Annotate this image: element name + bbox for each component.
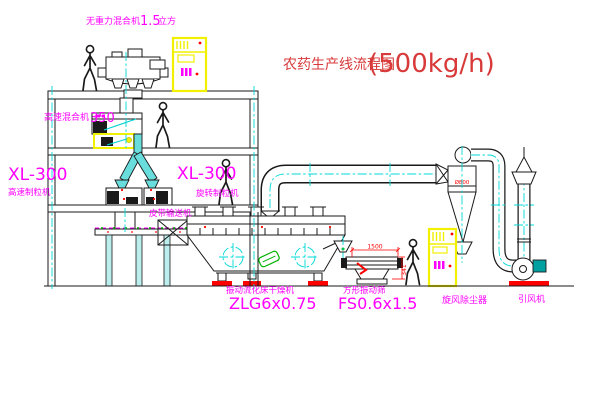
label-hs-mixer: 高速混合机 bbox=[44, 111, 89, 123]
granulator-left-unit bbox=[104, 188, 144, 205]
label-granulator-right-model: XL-300 bbox=[177, 164, 236, 184]
control-cabinet-lower bbox=[429, 229, 456, 286]
label-granulator-right-name: 旋转制粒机 bbox=[196, 188, 239, 199]
person-figure-top-floor bbox=[83, 46, 97, 91]
label-fan: 引风机 bbox=[518, 293, 545, 305]
label-granulator-left-name: 高速制粒机 bbox=[8, 187, 51, 198]
label-hs-mixer-value: 350 bbox=[90, 111, 115, 126]
cad-flow-diagram: 1500 341 Ø800 bbox=[0, 0, 600, 403]
control-cabinet-upper bbox=[173, 38, 206, 91]
exhaust-stack bbox=[512, 147, 536, 268]
label-top-mixer: 无重力混合机 bbox=[86, 15, 140, 27]
diagram-canvas: 1500 341 Ø800 bbox=[0, 0, 600, 403]
label-cyclone: 旋风除尘器 bbox=[442, 294, 487, 306]
label-belt-conveyor: 皮带输送机 bbox=[149, 208, 192, 219]
label-screen-model: FS0.6x1.5 bbox=[338, 294, 417, 313]
fluid-bed-dryer bbox=[187, 207, 345, 286]
page-title-capacity: (500kg/h) bbox=[368, 49, 495, 79]
induced-draft-fan bbox=[509, 258, 549, 286]
person-figure-ground bbox=[406, 240, 420, 285]
granulator-right-unit bbox=[142, 188, 174, 205]
belt-conveyor bbox=[95, 220, 192, 286]
dim-screen-width: 1500 bbox=[367, 244, 382, 251]
label-granulator-left-model: XL-300 bbox=[8, 165, 67, 185]
gravity-free-mixer bbox=[98, 49, 168, 114]
label-dryer-model: ZLG6x0.75 bbox=[229, 294, 317, 313]
fan-suction-pipe bbox=[471, 155, 517, 266]
label-top-mixer-unit: 立方 bbox=[158, 15, 176, 27]
person-figure-second-floor bbox=[156, 103, 170, 148]
